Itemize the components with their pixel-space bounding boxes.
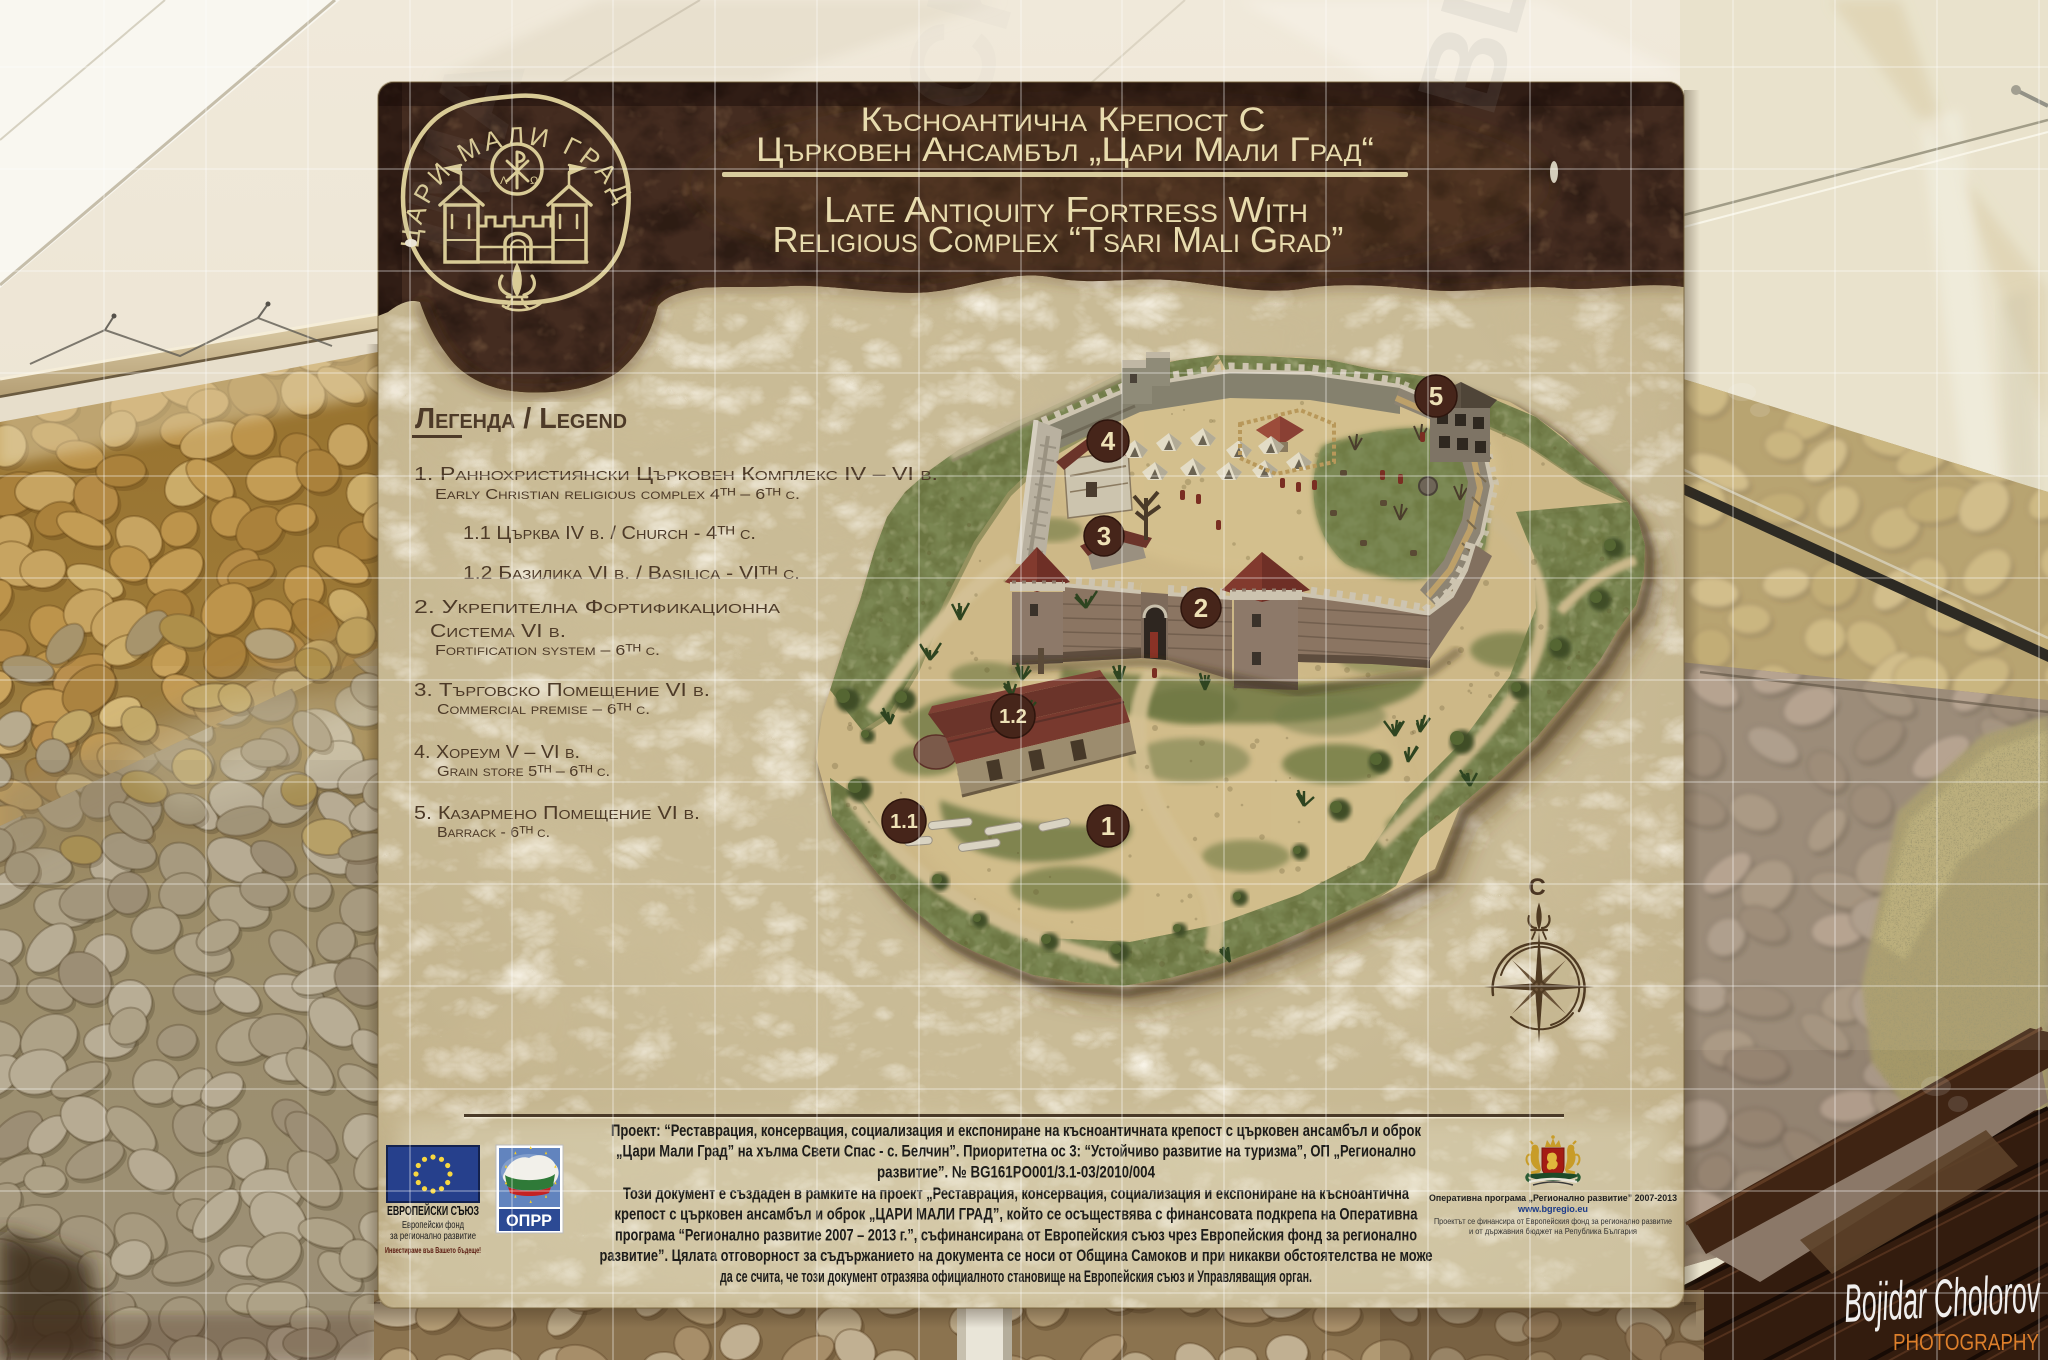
svg-text:www.bgregio.eu: www.bgregio.eu (1517, 1204, 1588, 1215)
svg-text:PHOTOGRAPHY: PHOTOGRAPHY (1893, 1329, 2039, 1355)
svg-text:Легенда / Legend: Легенда / Legend (415, 403, 627, 435)
svg-text:1.1 Църква IV в. / Church - 4ᵀ: 1.1 Църква IV в. / Church - 4ᵀᴴ c. (463, 523, 756, 543)
svg-text:Този документ е създаден в рам: Този документ е създаден в рамките на пр… (623, 1185, 1410, 1203)
svg-text:развитие”. Цялата отговорност: развитие”. Цялата отговорност за съдържа… (600, 1247, 1433, 1265)
svg-text:1.1: 1.1 (890, 811, 918, 833)
svg-text:Commercial premise – 6ᵀᴴ c.: Commercial premise – 6ᵀᴴ c. (437, 701, 650, 718)
svg-text:2. Укрепителна Фортификационна: 2. Укрепителна Фортификационна (414, 597, 780, 617)
svg-text:Проектът се финансира от Европ: Проектът се финансира от Европейския фон… (1434, 1216, 1672, 1226)
svg-text:3: 3 (1097, 521, 1111, 551)
svg-text:програма “Регионално развитие: програма “Регионално развитие 2007 – 201… (615, 1226, 1417, 1244)
svg-text:1.2 Базилика VI в. / Basilica: 1.2 Базилика VI в. / Basilica - VIᵀᴴ c. (463, 563, 800, 583)
svg-text:Barrack - 6ᵀᴴ c.: Barrack - 6ᵀᴴ c. (437, 824, 550, 841)
svg-text:3. Търговско Помещение VI в.: 3. Търговско Помещение VI в. (414, 680, 710, 700)
svg-text:Early Christian religious comp: Early Christian religious complex 4ᵀᴴ – … (435, 486, 800, 503)
svg-text:2: 2 (1194, 593, 1208, 623)
svg-text:Църковен Ансамбъл „Цари Мали Г: Църковен Ансамбъл „Цари Мали Град“ (756, 131, 1374, 169)
svg-text:Проект: “Реставрация, консерва: Проект: “Реставрация, консервация, социа… (611, 1122, 1422, 1140)
svg-text:Bojidar Cholorov: Bojidar Cholorov (1842, 1264, 2042, 1334)
svg-text:Европейски фонд: Европейски фонд (402, 1219, 464, 1231)
svg-text:1. Раннохристиянски Църковен К: 1. Раннохристиянски Църковен Комплекс IV… (414, 464, 938, 484)
svg-text:„Цари Мали Град” на хълма Свет: „Цари Мали Град” на хълма Свети Спас - с… (616, 1143, 1416, 1161)
svg-text:Инвестираме във Вашето бъдеще!: Инвестираме във Вашето бъдеще! (385, 1246, 481, 1255)
svg-text:5: 5 (1429, 381, 1443, 411)
svg-text:4: 4 (1101, 426, 1116, 456)
svg-text:ЕВРОПЕЙСКИ СЪЮЗ: ЕВРОПЕЙСКИ СЪЮЗ (387, 1203, 479, 1218)
svg-text:и от държавния бюджет на Репуб: и от държавния бюджет на Република Бълга… (1469, 1226, 1637, 1236)
svg-text:Grain store 5ᵀᴴ – 6ᵀᴴ c.: Grain store 5ᵀᴴ – 6ᵀᴴ c. (437, 763, 610, 780)
svg-text:Оперативна програма „Регионалн: Оперативна програма „Регионално развитие… (1429, 1193, 1677, 1204)
svg-text:Religious Complex “Tsari Mali: Religious Complex “Tsari Mali Grad” (773, 219, 1344, 260)
svg-text:5. Казармено Помещение VI в.: 5. Казармено Помещение VI в. (414, 803, 700, 823)
svg-text:4. Хореум V – VI в.: 4. Хореум V – VI в. (414, 742, 580, 762)
svg-text:Система VI в.: Система VI в. (430, 621, 566, 641)
svg-text:крепост с църковен ансамбъл и: крепост с църковен ансамбъл и оброк „ЦАР… (615, 1206, 1419, 1224)
svg-text:1.2: 1.2 (999, 706, 1027, 728)
svg-text:Ω: Ω (530, 175, 538, 187)
svg-text:1: 1 (1101, 811, 1115, 841)
svg-text:Fortification system – 6ᵀᴴ c.: Fortification system – 6ᵀᴴ c. (435, 642, 660, 659)
svg-text:за регионално развитие: за регионално развитие (390, 1231, 476, 1242)
